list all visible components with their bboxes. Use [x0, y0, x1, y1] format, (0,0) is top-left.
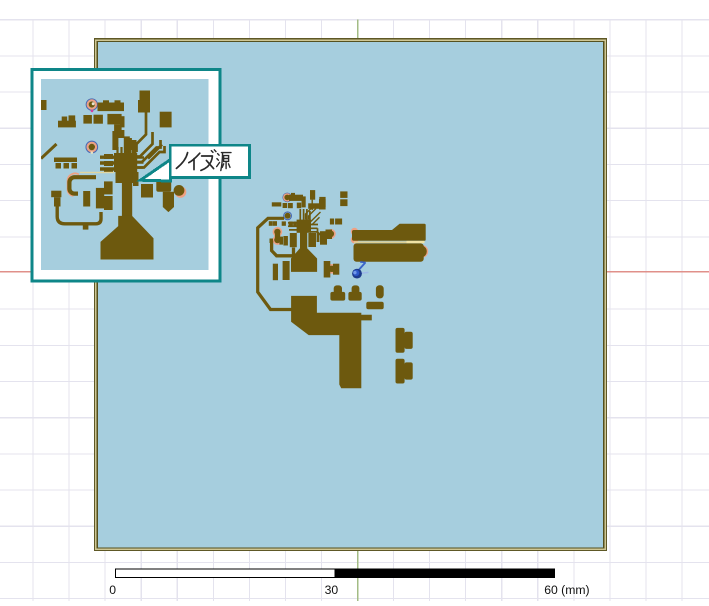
svg-text:60 (mm): 60 (mm) — [544, 583, 589, 597]
svg-text:0: 0 — [109, 583, 116, 597]
svg-text:30: 30 — [325, 583, 339, 597]
